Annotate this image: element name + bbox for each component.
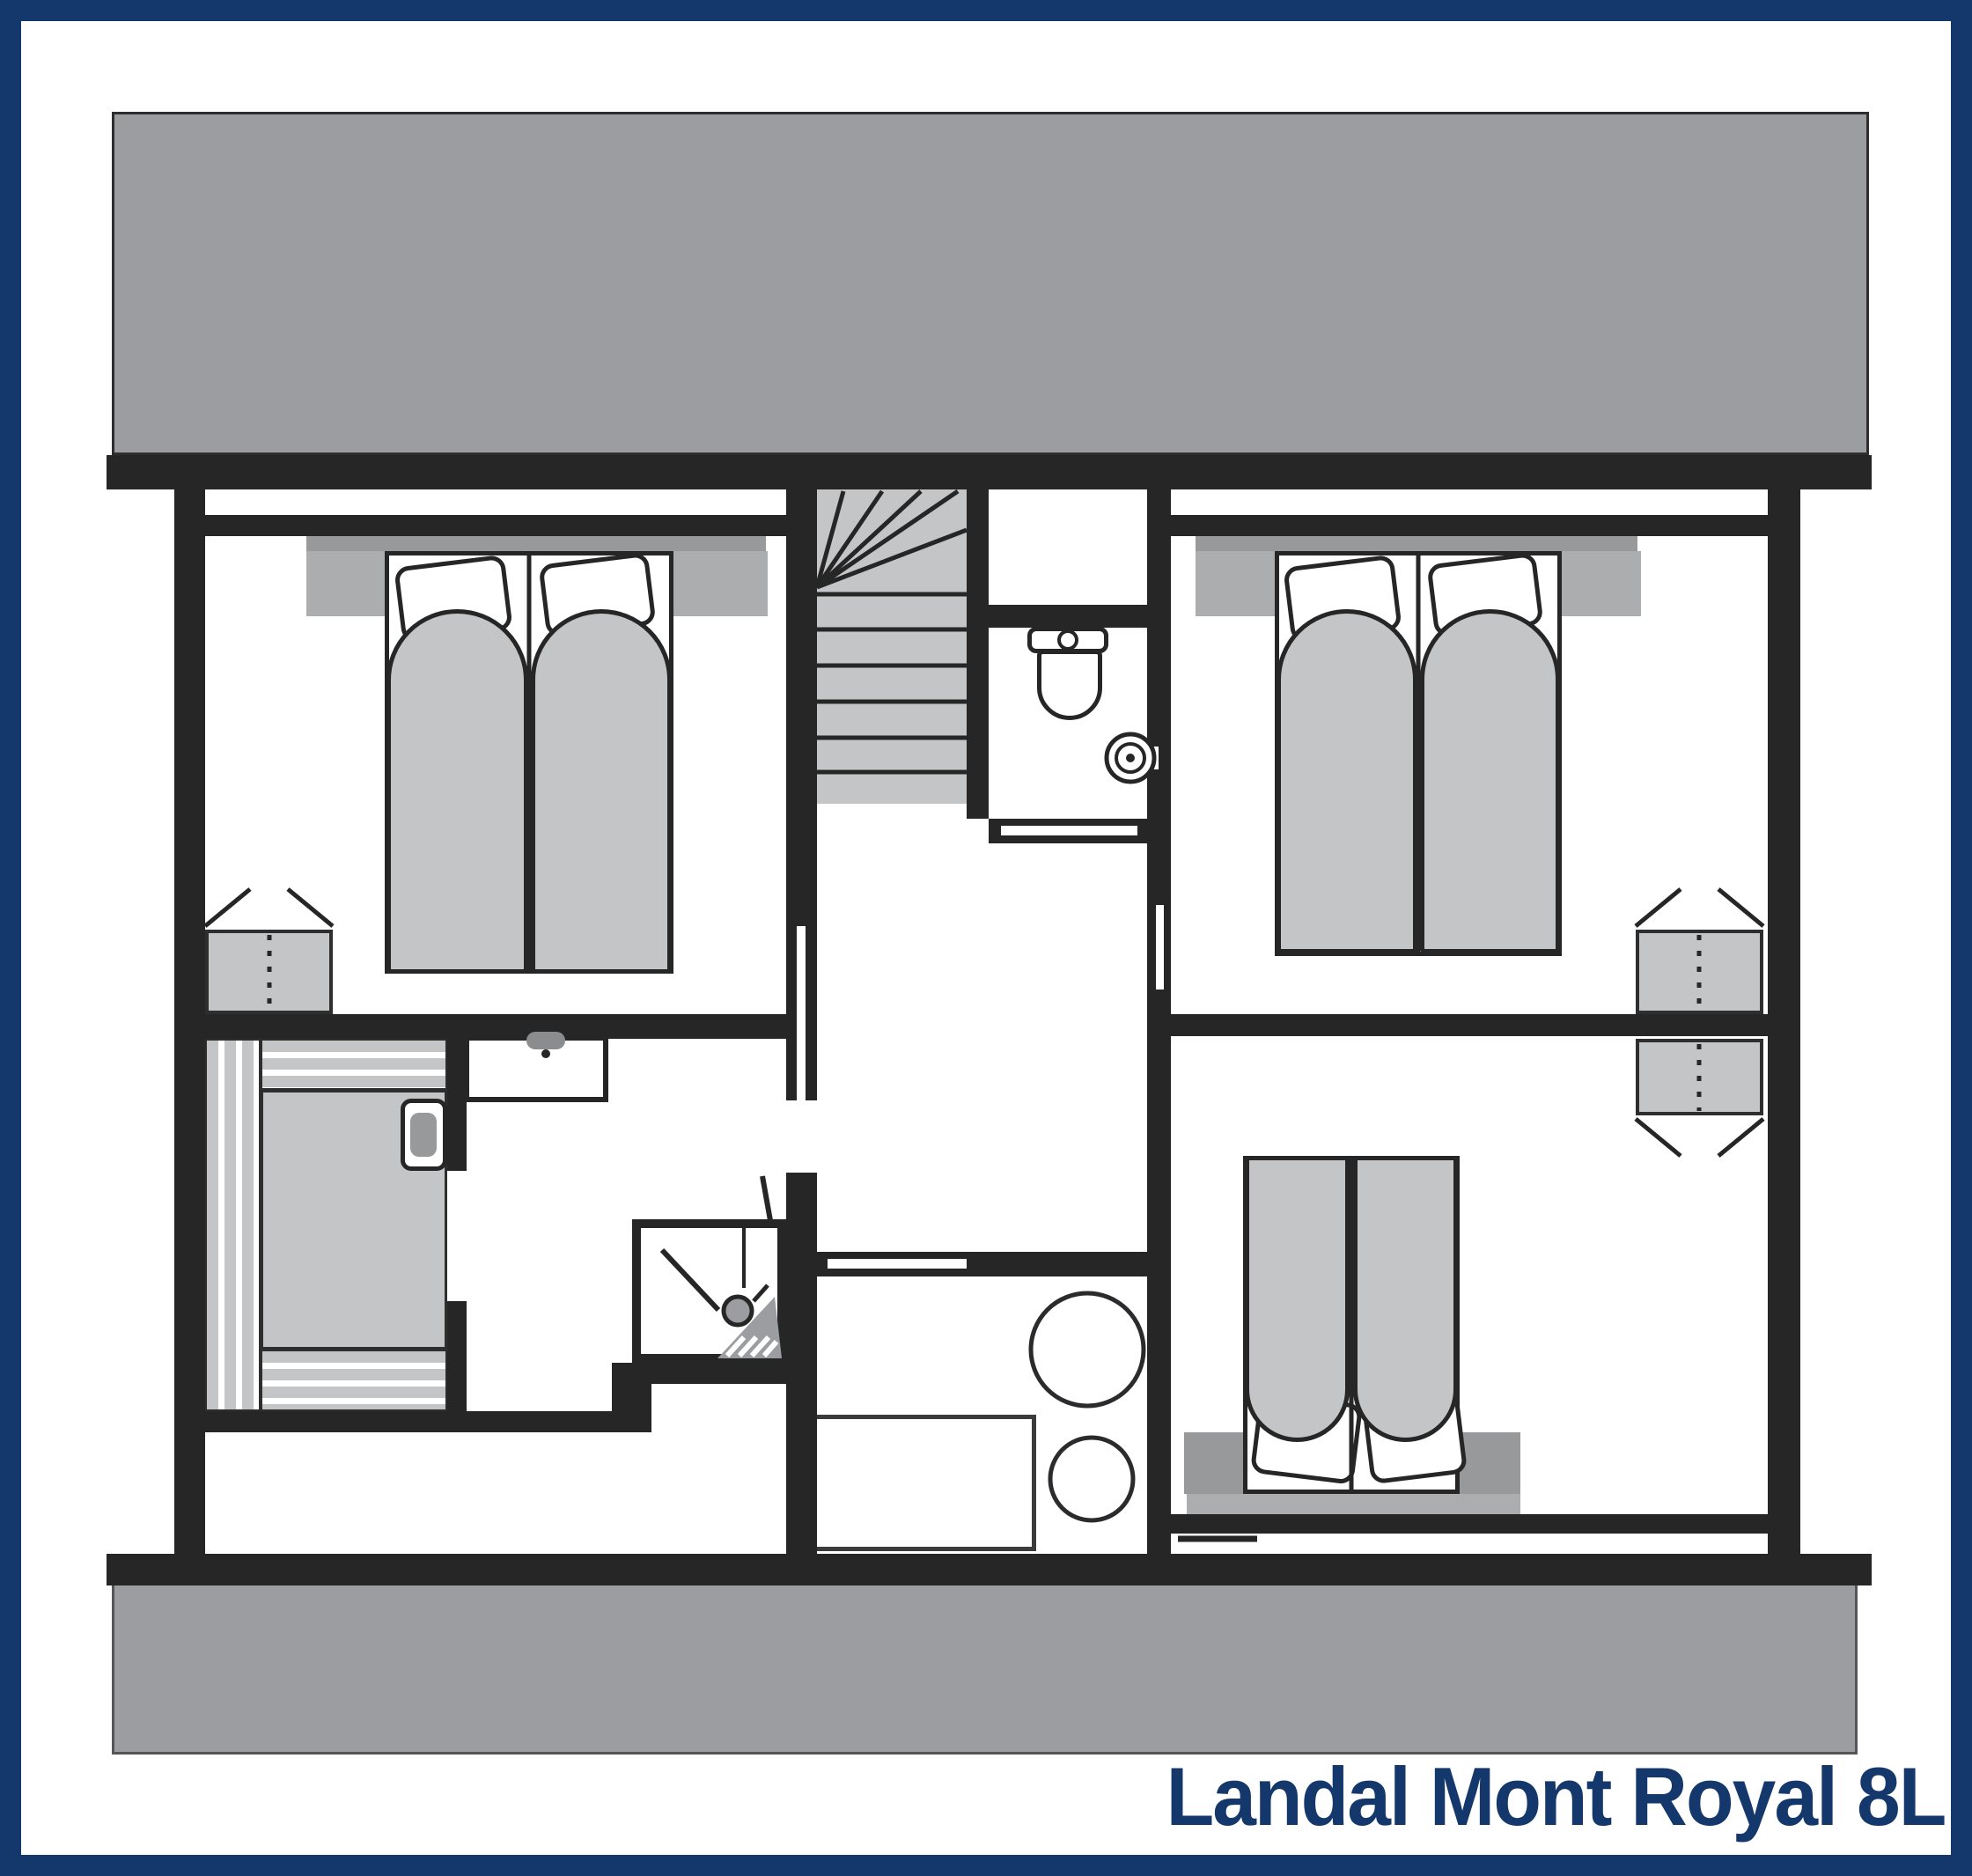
floorplan-page: Landal Mont Royal 8L	[0, 0, 1972, 1876]
sauna-bench-top	[261, 1039, 447, 1090]
door-toilet	[1001, 826, 1137, 835]
door-techroom	[828, 1259, 967, 1269]
boiler-large-icon	[1031, 1293, 1144, 1406]
sauna-door-handle-grip	[410, 1113, 437, 1157]
frame-bottom	[0, 1855, 1972, 1876]
wall-bedrooms-right-divider	[1171, 1014, 1768, 1036]
wall-hall-east	[1147, 489, 1171, 1554]
wall-bedroom1-top	[205, 515, 786, 536]
wardrobe-bedroom3	[1636, 1039, 1763, 1115]
wall-bathroom-step	[612, 1363, 651, 1432]
roof-band	[112, 112, 1869, 455]
bed2-duvet-left	[1277, 609, 1417, 953]
boiler-small-icon	[1050, 1438, 1133, 1520]
bed1-headboard-strip	[306, 536, 766, 551]
toilet-bowl	[1037, 650, 1102, 720]
wardrobe-bedroom1	[205, 930, 333, 1014]
bed3-duvet-right	[1353, 1156, 1458, 1442]
bed1-duvet-left	[386, 609, 528, 974]
frame-right	[1951, 0, 1972, 1876]
door-bathroom	[786, 1100, 817, 1173]
sauna-bench-left	[205, 1039, 261, 1411]
washbasin-tap-dot	[541, 1049, 550, 1058]
wall-sauna-right-lower	[447, 1301, 467, 1411]
door-bedroom2	[1156, 905, 1164, 989]
bed3-side-block-right	[1460, 1432, 1520, 1494]
washbasin-tap	[526, 1032, 565, 1049]
wall-sauna-bottom	[205, 1411, 651, 1432]
bed3-side-block-left	[1184, 1432, 1243, 1494]
sauna-bench-bottom	[261, 1350, 447, 1411]
bed1-duvet-right	[531, 609, 672, 974]
plan-title: Landal Mont Royal 8L	[1166, 1749, 1945, 1844]
staircase	[817, 489, 967, 804]
wall-exterior-right	[1768, 489, 1800, 1554]
wardrobe-bedroom2	[1636, 930, 1763, 1014]
wall-exterior-left	[174, 489, 205, 1554]
wall-bedroom2-top	[1171, 515, 1768, 536]
wall-stairs-toilet	[967, 489, 989, 819]
techroom-worktop	[813, 1415, 1036, 1551]
bottom-beam	[107, 1554, 1872, 1585]
bed3-footboard	[1187, 1494, 1520, 1514]
bed3-duvet-left	[1245, 1156, 1350, 1442]
toilet-cistern	[1027, 627, 1108, 653]
bed2-headboard-strip	[1196, 536, 1637, 551]
wall-bedroom3-bottom	[1171, 1514, 1768, 1534]
bed2-duvet-right	[1420, 609, 1560, 953]
shower-cubicle	[632, 1219, 786, 1363]
frame-top	[0, 0, 1972, 21]
wall-toilet-closet-divider	[989, 605, 1147, 628]
terrace-band	[112, 1585, 1858, 1755]
door-bedroom1	[797, 926, 806, 1106]
frame-left	[0, 0, 21, 1876]
top-beam	[107, 455, 1872, 489]
